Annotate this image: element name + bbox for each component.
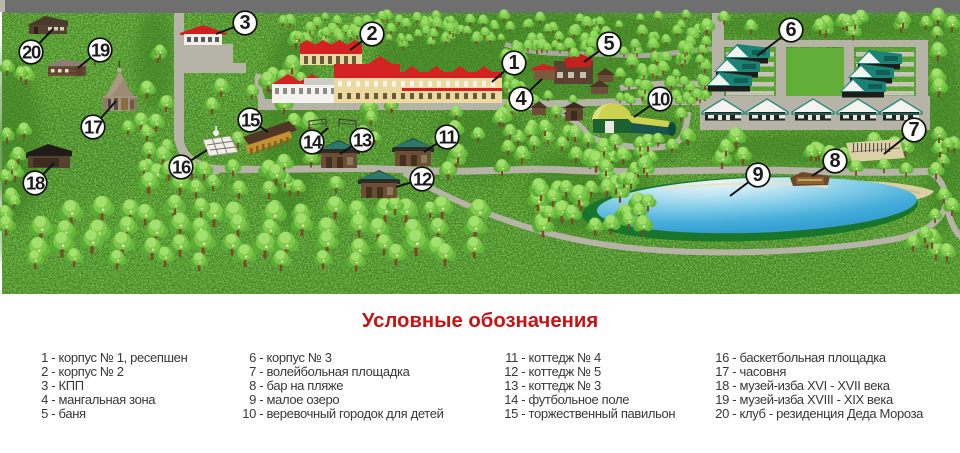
svg-text:4: 4 <box>515 88 527 110</box>
svg-text:5: 5 <box>603 33 614 55</box>
svg-text:16: 16 <box>172 157 191 178</box>
svg-text:9: 9 <box>752 164 763 186</box>
svg-text:19: 19 <box>91 40 110 61</box>
svg-text:10: 10 <box>651 89 670 110</box>
svg-text:7: 7 <box>908 119 919 141</box>
svg-text:17: 17 <box>84 117 103 138</box>
svg-text:1: 1 <box>508 52 519 74</box>
svg-text:15: 15 <box>241 110 260 131</box>
svg-text:18: 18 <box>26 173 45 194</box>
svg-text:2: 2 <box>366 23 377 45</box>
svg-text:20: 20 <box>22 42 41 63</box>
svg-text:14: 14 <box>303 132 323 153</box>
svg-text:11: 11 <box>439 127 457 148</box>
svg-text:8: 8 <box>829 150 840 172</box>
svg-text:12: 12 <box>413 169 432 190</box>
svg-text:6: 6 <box>785 19 796 41</box>
svg-text:13: 13 <box>353 130 372 151</box>
svg-text:3: 3 <box>239 12 250 34</box>
